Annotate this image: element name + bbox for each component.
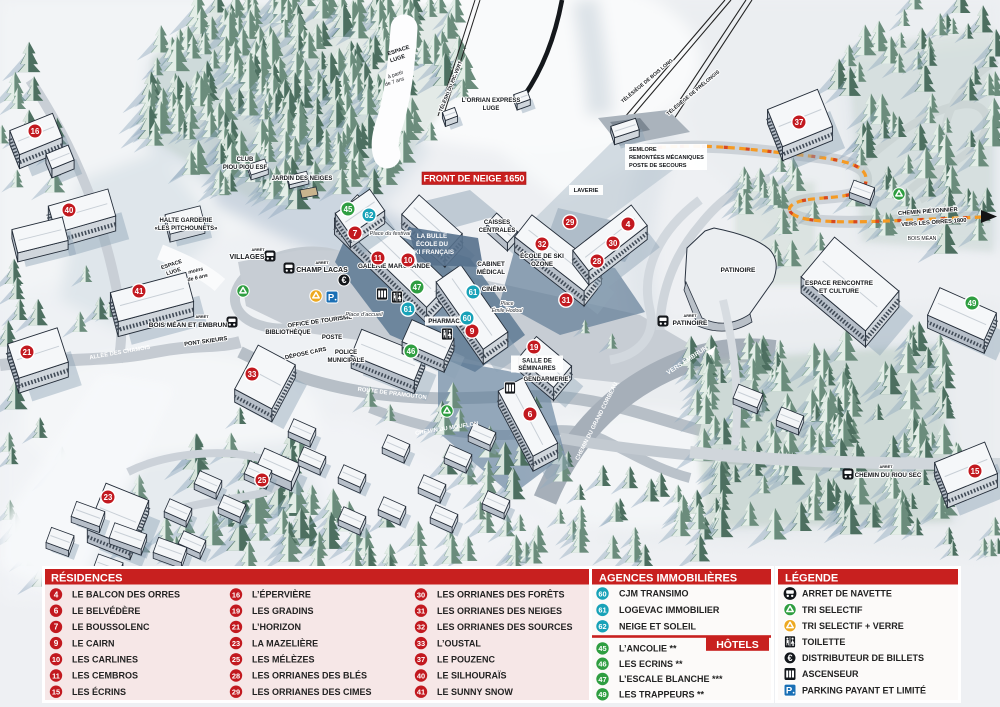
svg-text:€: € bbox=[787, 653, 792, 663]
svg-text:LE BOUSSOLENC: LE BOUSSOLENC bbox=[72, 622, 150, 632]
svg-text:61: 61 bbox=[469, 288, 478, 297]
svg-text:19: 19 bbox=[530, 343, 539, 352]
svg-text:11: 11 bbox=[374, 254, 383, 263]
svg-text:4: 4 bbox=[626, 219, 631, 229]
svg-text:33: 33 bbox=[417, 639, 425, 648]
svg-text:REMONTÉES MÉCANIQUES: REMONTÉES MÉCANIQUES bbox=[629, 153, 704, 161]
svg-text:Place: Place bbox=[501, 301, 514, 307]
svg-text:CAISSES: CAISSES bbox=[484, 220, 510, 226]
svg-text:€: € bbox=[341, 275, 346, 285]
svg-text:31: 31 bbox=[562, 296, 571, 305]
svg-text:4: 4 bbox=[54, 590, 59, 599]
svg-text:LES CARLINES: LES CARLINES bbox=[72, 655, 138, 665]
svg-text:LE CAIRN: LE CAIRN bbox=[72, 638, 115, 648]
svg-text:P: P bbox=[786, 686, 793, 697]
svg-text:62: 62 bbox=[598, 622, 606, 631]
svg-text:61: 61 bbox=[598, 606, 606, 615]
svg-text:LES GRADINS: LES GRADINS bbox=[252, 606, 314, 616]
svg-text:23: 23 bbox=[232, 639, 240, 648]
svg-text:6: 6 bbox=[528, 409, 533, 419]
svg-text:LUGE: LUGE bbox=[483, 106, 500, 112]
svg-text:MÉDICAL: MÉDICAL bbox=[477, 268, 505, 276]
svg-text:LA BULLE: LA BULLE bbox=[417, 233, 447, 240]
svg-text:PARKING PAYANT ET LIMITÉ: PARKING PAYANT ET LIMITÉ bbox=[802, 685, 926, 695]
svg-text:49: 49 bbox=[598, 690, 606, 699]
svg-text:LE BELVÉDÈRE: LE BELVÉDÈRE bbox=[72, 606, 140, 616]
svg-text:LE SILHOURAÏS: LE SILHOURAÏS bbox=[437, 671, 507, 681]
svg-text:49: 49 bbox=[968, 299, 977, 308]
svg-text:32: 32 bbox=[538, 240, 547, 249]
svg-text:7: 7 bbox=[54, 623, 59, 632]
svg-text:LES ORRIANES DES BLÉS: LES ORRIANES DES BLÉS bbox=[252, 671, 367, 681]
svg-text:ARRÊT: ARRÊT bbox=[683, 313, 697, 318]
svg-text:LE POUZENC: LE POUZENC bbox=[437, 655, 496, 665]
svg-text:LE SUNNY SNOW: LE SUNNY SNOW bbox=[437, 687, 513, 697]
svg-text:32: 32 bbox=[417, 623, 425, 632]
svg-text:16: 16 bbox=[232, 590, 240, 599]
svg-text:PATINOIRE: PATINOIRE bbox=[721, 267, 757, 274]
svg-text:CHEMIN DU RIOU SEC: CHEMIN DU RIOU SEC bbox=[855, 472, 922, 479]
svg-text:L’ESCALE BLANCHE ***: L’ESCALE BLANCHE *** bbox=[619, 674, 723, 684]
svg-text:L’HORIZON: L’HORIZON bbox=[252, 622, 301, 632]
svg-text:LES ORRIANES DES NEIGES: LES ORRIANES DES NEIGES bbox=[437, 606, 562, 616]
svg-text:6: 6 bbox=[54, 607, 59, 616]
svg-text:33: 33 bbox=[248, 370, 257, 379]
svg-text:61: 61 bbox=[404, 305, 413, 314]
svg-text:CHAMP LACAS: CHAMP LACAS bbox=[296, 267, 348, 274]
svg-text:47: 47 bbox=[413, 283, 422, 292]
svg-text:29: 29 bbox=[566, 218, 575, 227]
svg-text:25: 25 bbox=[232, 655, 240, 664]
svg-text:HÔTELS: HÔTELS bbox=[716, 638, 759, 651]
svg-text:28: 28 bbox=[232, 671, 240, 680]
svg-text:LES ÉCRINS: LES ÉCRINS bbox=[72, 687, 126, 697]
svg-text:VILLAGES: VILLAGES bbox=[229, 254, 264, 261]
svg-text:AGENCES IMMOBILIÈRES: AGENCES IMMOBILIÈRES bbox=[599, 572, 737, 585]
svg-text:30: 30 bbox=[609, 239, 618, 248]
svg-text:L’ANCOLIE **: L’ANCOLIE ** bbox=[619, 644, 677, 654]
svg-text:OZONE: OZONE bbox=[531, 261, 553, 268]
svg-text:NEIGE ET SOLEIL: NEIGE ET SOLEIL bbox=[619, 622, 697, 632]
svg-text:30: 30 bbox=[417, 590, 425, 599]
svg-text:CLUB: CLUB bbox=[237, 157, 254, 163]
svg-text:60: 60 bbox=[598, 589, 606, 598]
svg-text:45: 45 bbox=[344, 205, 353, 214]
svg-text:LA MAZELIÈRE: LA MAZELIÈRE bbox=[252, 638, 318, 648]
svg-text:CJM TRANSIMO: CJM TRANSIMO bbox=[619, 589, 689, 599]
svg-text:LES TRAPPEURS **: LES TRAPPEURS ** bbox=[619, 690, 705, 700]
svg-text:TRI SELECTIF: TRI SELECTIF bbox=[802, 605, 863, 615]
svg-text:LE BALCON DES ORRES: LE BALCON DES ORRES bbox=[72, 590, 180, 600]
svg-text:10: 10 bbox=[404, 256, 413, 265]
svg-text:7: 7 bbox=[353, 228, 358, 238]
svg-text:LES MÉLÈZES: LES MÉLÈZES bbox=[252, 655, 315, 665]
svg-text:DISTRIBUTEUR DE BILLETS: DISTRIBUTEUR DE BILLETS bbox=[802, 653, 924, 663]
svg-text:ESPACE RENCONTRE: ESPACE RENCONTRE bbox=[805, 280, 874, 287]
svg-text:LÉGENDE: LÉGENDE bbox=[785, 572, 838, 585]
svg-text:SEMLORE: SEMLORE bbox=[629, 147, 657, 153]
svg-text:BIBLIOTHÈQUE: BIBLIOTHÈQUE bbox=[265, 328, 310, 336]
svg-text:37: 37 bbox=[795, 118, 804, 127]
svg-text:SÉMINAIRES: SÉMINAIRES bbox=[518, 364, 555, 372]
svg-text:Place du festival: Place du festival bbox=[370, 231, 411, 237]
svg-text:40: 40 bbox=[65, 206, 74, 215]
svg-text:15: 15 bbox=[52, 688, 60, 697]
svg-text:62: 62 bbox=[365, 211, 374, 220]
svg-text:JARDIN DES NEIGES: JARDIN DES NEIGES bbox=[272, 176, 333, 182]
svg-text:10: 10 bbox=[52, 655, 60, 664]
svg-text:GENDARMERIE: GENDARMERIE bbox=[523, 377, 568, 383]
svg-text:MUNICIPALE: MUNICIPALE bbox=[328, 358, 365, 364]
svg-text:SALLE DE: SALLE DE bbox=[522, 358, 552, 364]
svg-text:21: 21 bbox=[232, 623, 240, 632]
svg-text:41: 41 bbox=[417, 688, 425, 697]
svg-text:LES ORRIANES DES SOURCES: LES ORRIANES DES SOURCES bbox=[437, 622, 573, 632]
svg-text:40: 40 bbox=[417, 671, 425, 680]
svg-text:BOIS MÉAN ET EMBRUN: BOIS MÉAN ET EMBRUN bbox=[149, 320, 228, 329]
svg-text:ARRÊT: ARRÊT bbox=[251, 247, 265, 252]
svg-text:23: 23 bbox=[104, 493, 113, 502]
svg-text:29: 29 bbox=[232, 688, 240, 697]
svg-text:LES ORRIANES DES CIMES: LES ORRIANES DES CIMES bbox=[252, 687, 372, 697]
svg-text:POLICE: POLICE bbox=[335, 350, 357, 356]
svg-text:L’ORRIAN EXPRESS: L’ORRIAN EXPRESS bbox=[462, 98, 521, 104]
svg-text:LES ORRIANES DES FORÊTS: LES ORRIANES DES FORÊTS bbox=[437, 589, 565, 600]
svg-text:45: 45 bbox=[598, 644, 606, 653]
svg-text:Place d’accueil: Place d’accueil bbox=[345, 312, 383, 318]
svg-text:9: 9 bbox=[470, 326, 475, 336]
svg-text:TRI SELECTIF + VERRE: TRI SELECTIF + VERRE bbox=[802, 621, 904, 631]
svg-text:PIOU PIOU ESF: PIOU PIOU ESF bbox=[223, 165, 268, 171]
svg-text:ARRÊT: ARRÊT bbox=[195, 314, 209, 319]
svg-text:ÉCOLE DE SKI: ÉCOLE DE SKI bbox=[520, 252, 564, 260]
svg-text:LOGEVAC IMMOBILIER: LOGEVAC IMMOBILIER bbox=[619, 605, 720, 615]
svg-text:POSTE: POSTE bbox=[322, 335, 342, 341]
svg-text:37: 37 bbox=[417, 655, 425, 664]
svg-text:L’ÉPERVIÈRE: L’ÉPERVIÈRE bbox=[252, 590, 311, 600]
svg-text:CINÉMA: CINÉMA bbox=[482, 285, 507, 293]
svg-text:ASCENSEUR: ASCENSEUR bbox=[802, 669, 859, 679]
svg-text:19: 19 bbox=[232, 607, 240, 616]
svg-text:ARRÊT: ARRÊT bbox=[879, 464, 893, 469]
svg-text:15: 15 bbox=[971, 467, 980, 476]
svg-text:BOIS MÉAN: BOIS MÉAN bbox=[908, 235, 937, 242]
svg-text:47: 47 bbox=[598, 675, 606, 684]
svg-text:28: 28 bbox=[593, 257, 602, 266]
svg-text:SKI FRANÇAIS: SKI FRANÇAIS bbox=[410, 249, 454, 256]
svg-text:21: 21 bbox=[23, 348, 32, 357]
svg-text:LES CEMBROS: LES CEMBROS bbox=[72, 671, 138, 681]
svg-text:TOILETTE: TOILETTE bbox=[802, 637, 845, 647]
svg-text:31: 31 bbox=[417, 607, 425, 616]
svg-text:9: 9 bbox=[54, 639, 59, 648]
svg-text:16: 16 bbox=[31, 127, 40, 136]
svg-text:60: 60 bbox=[463, 314, 472, 323]
svg-text:«LES PITCHOUNETS»: «LES PITCHOUNETS» bbox=[154, 226, 218, 232]
svg-text:PATINOIRE: PATINOIRE bbox=[673, 320, 709, 327]
svg-text:ARRÊT: ARRÊT bbox=[315, 260, 329, 265]
svg-text:FRONT DE NEIGE 1650: FRONT DE NEIGE 1650 bbox=[423, 174, 524, 184]
svg-text:Émile Hodoul: Émile Hodoul bbox=[492, 307, 524, 314]
svg-text:46: 46 bbox=[598, 660, 606, 669]
svg-text:CABINET: CABINET bbox=[477, 261, 505, 268]
svg-text:HALTE GARDERIE: HALTE GARDERIE bbox=[160, 218, 213, 224]
svg-text:41: 41 bbox=[135, 287, 144, 296]
svg-text:P: P bbox=[328, 293, 335, 304]
svg-text:GALERIE MARCHANDE: GALERIE MARCHANDE bbox=[358, 263, 431, 270]
svg-text:11: 11 bbox=[52, 671, 60, 680]
svg-text:L’OUSTAL: L’OUSTAL bbox=[437, 638, 481, 648]
svg-text:25: 25 bbox=[258, 476, 267, 485]
svg-text:CENTRALES: CENTRALES bbox=[479, 228, 516, 234]
svg-text:RÉSIDENCES: RÉSIDENCES bbox=[51, 572, 123, 585]
svg-text:LAVERIE: LAVERIE bbox=[574, 188, 599, 194]
svg-text:ARRET DE NAVETTE: ARRET DE NAVETTE bbox=[802, 589, 892, 599]
svg-text:LES ECRINS **: LES ECRINS ** bbox=[619, 659, 683, 669]
svg-text:POSTE DE SECOURS: POSTE DE SECOURS bbox=[629, 163, 687, 169]
svg-text:ET CULTURE: ET CULTURE bbox=[819, 288, 860, 295]
svg-text:46: 46 bbox=[407, 347, 416, 356]
svg-text:ÉCOLE DU: ÉCOLE DU bbox=[416, 240, 449, 248]
